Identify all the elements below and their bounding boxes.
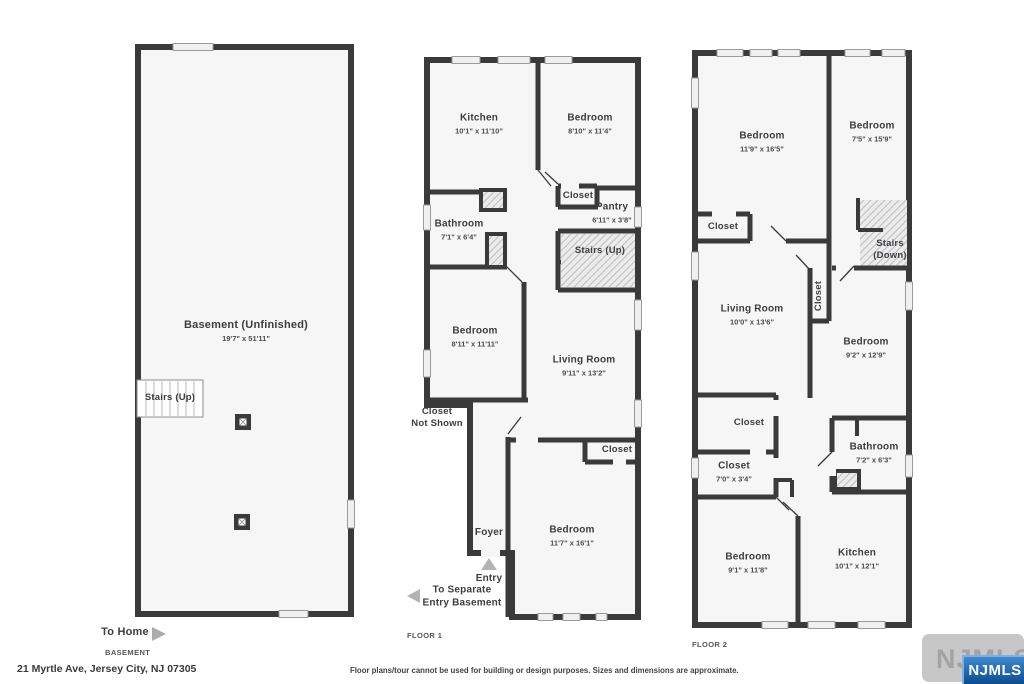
property-address: 21 Myrtle Ave, Jersey City, NJ 07305 [17, 663, 196, 675]
room-label-bedroom-tl: Bedroom 11'9" x 16'5" [739, 131, 784, 154]
room-label-kitchen-f2: Kitchen 10'1" x 12'1" [835, 548, 879, 571]
room-label-closet-top: Closet [563, 190, 593, 202]
floor-label-basement: BASEMENT [105, 648, 150, 657]
to-home-arrow-icon[interactable] [152, 627, 166, 641]
column-marker [234, 514, 250, 530]
floor-label-floor1: FLOOR 1 [407, 631, 442, 640]
bathroom-fixture-hatch [481, 190, 505, 210]
room-label-bedroom-top: Bedroom 8'10" x 11'4" [567, 113, 612, 136]
room-label-stairs-up: Stairs (Up) [575, 245, 625, 257]
separate-entry-arrow-icon[interactable] [407, 589, 420, 603]
room-label-bathroom-f2: Bathroom 7'2" x 6'3" [850, 442, 899, 465]
room-label-pantry: Pantry 6'11" x 3'8" [592, 202, 631, 225]
floor1-plan [407, 57, 642, 621]
room-label-foyer: Foyer [475, 527, 503, 540]
njmls-logo-badge: NJMLS [962, 655, 1024, 684]
separate-entry-label[interactable]: To Separate Entry Basement [423, 585, 502, 610]
closet-not-shown-note: Closet Not Shown [411, 406, 462, 430]
room-label-basement-stairs: Stairs (Up) [145, 392, 195, 404]
room-label-bedroom-tr: Bedroom 7'5" x 15'9" [849, 121, 894, 144]
room-label-living-room: Living Room 9'11" x 13'2" [553, 355, 616, 378]
column-marker [235, 414, 251, 430]
room-label-stairs-down: Stairs (Down) [873, 238, 906, 262]
to-home-link[interactable]: To Home [101, 626, 149, 640]
bathroom-fixture-hatch [487, 234, 505, 267]
room-label-kitchen: Kitchen 10'1" x 11'10" [455, 113, 503, 136]
floor-label-floor2: FLOOR 2 [692, 640, 727, 649]
entry-arrow-icon[interactable] [481, 558, 497, 570]
room-label-bedroom-bottom: Bedroom 11'7" x 16'1" [549, 525, 594, 548]
entry-label: Entry [476, 573, 503, 586]
room-label-closet-bottom: Closet [602, 444, 632, 456]
room-label-closet-a: Closet [734, 417, 764, 429]
room-label-basement: Basement (Unfinished) 19'7" x 51'11" [184, 319, 308, 343]
floor-plan-page: { "meta": { "address": "21 Myrtle Ave, J… [0, 0, 1024, 682]
room-label-bedroom-bottom-f2: Bedroom 9'1" x 11'8" [725, 552, 770, 575]
disclaimer-text: Floor plans/tour cannot be used for buil… [350, 666, 739, 675]
room-label-bedroom-right: Bedroom 9'2" x 12'9" [843, 337, 888, 360]
room-label-closet-b: Closet 7'0" x 3'4" [716, 461, 752, 484]
room-label-living-room-f2: Living Room 10'0" x 13'6" [721, 304, 784, 327]
floor1-stairs-hatch [561, 234, 635, 287]
room-label-closet-f2-top: Closet [708, 221, 738, 233]
room-label-bathroom: Bathroom 7'1" x 6'4" [435, 219, 484, 242]
room-label-bedroom-mid: Bedroom 8'11" x 11'11" [452, 326, 499, 349]
bathroom-fixture-hatch [835, 471, 859, 489]
room-label-closet-mid: Closet [813, 281, 825, 311]
